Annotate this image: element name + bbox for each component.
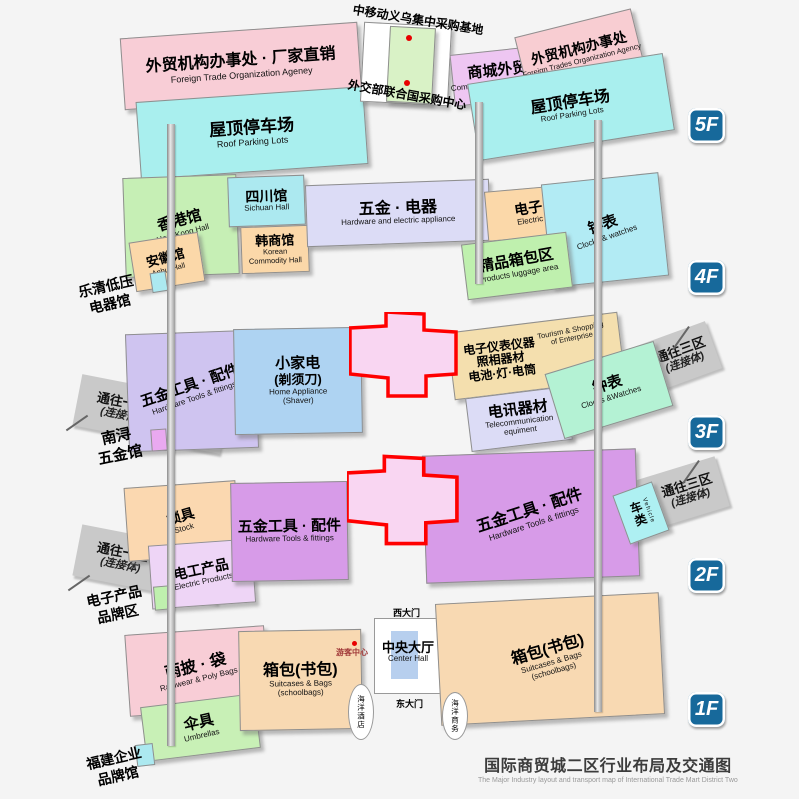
block-label-en: Commodity Hall (249, 256, 302, 266)
support-pillar-center (475, 102, 483, 284)
floor-badge-1f: 1F (688, 692, 725, 727)
connector-cross-3f (349, 312, 459, 398)
annotation-electronics-brand-zone: 电子产品 品牌区 (85, 583, 147, 629)
floor-map-canvas: 外贸机构办事处 · 厂家直销 Foreign Trade Organizatio… (0, 0, 799, 799)
bubble-label: 海洋酒店 (356, 695, 367, 729)
block-label-en: Sichuan Hall (244, 204, 289, 215)
block-label-en: (Shaver) (283, 396, 314, 405)
bubble-label: 海洋商务 (450, 699, 461, 733)
red-dot-marker (404, 80, 410, 86)
annotation-nanxun-hardware-hall: 南浔 五金馆 (93, 424, 145, 470)
small-notch-cyan-4f (150, 271, 169, 293)
block-hardware-tools-mid-2f: 五金工具 · 配件 Hardware Tools & fittings (230, 481, 349, 582)
tourist-center-label: 游客中心 (336, 647, 368, 658)
break-mark (68, 575, 90, 592)
map-title-zh: 国际商贸城二区行业布局及交通图 (478, 752, 738, 776)
center-hall-label: 中央大厅 Center Hall (374, 641, 442, 664)
red-dot-marker (352, 641, 357, 646)
block-label-en: Center Hall (374, 655, 442, 664)
support-pillar-left (167, 124, 175, 746)
map-title-en: The Major Industry layout and transport … (478, 777, 738, 784)
connector-cross-2f (347, 452, 459, 550)
block-label-en: Hardware Tools & fittings (245, 535, 333, 545)
annotation-yueqing-lv-electric-hall: 乐清低压 电器馆 (77, 272, 139, 319)
map-title: 国际商贸城二区行业布局及交通图 The Major Industry layou… (478, 752, 738, 784)
small-notch-purple-3f (150, 428, 167, 451)
block-suitcases-bags-left-1f: 箱包(书包) Suitcases & Bags (schoolbags) (238, 629, 363, 731)
floor-badge-5f: 5F (688, 108, 725, 143)
block-label-en: Hardware and electric appliance (341, 215, 456, 228)
haiyang-business-bubble: 海洋商务 (442, 692, 468, 740)
block-sichuan-hall-4f: 四川馆 Sichuan Hall (227, 175, 306, 228)
floor-badge-4f: 4F (688, 260, 725, 295)
block-label-en: equiment (504, 425, 538, 438)
floor-badge-3f: 3F (688, 415, 725, 450)
east-gate-label: 东大门 (396, 697, 423, 710)
haiyang-hotel-bubble: 海洋酒店 (348, 684, 374, 740)
block-label-en: (schoolbags) (278, 689, 324, 699)
annotation-fujian-brand-hall: 福建企业 品牌馆 (85, 744, 147, 791)
red-dot-marker (406, 35, 412, 41)
block-home-appliance-3f: 小家电 (剃须刀) Home Appliance (Shaver) (233, 327, 363, 435)
block-korean-commodity-hall-4f: 韩商馆 Korean Commodity Hall (240, 225, 310, 274)
block-label-zh: 中央大厅 (374, 641, 442, 655)
west-gate-label: 西大门 (393, 606, 420, 619)
block-suitcases-bags-right-1f: 箱包(书包) Suitcases & Bags (schoolbags) (435, 592, 665, 726)
support-pillar-right (594, 120, 602, 712)
block-label-en: Electric (517, 214, 544, 227)
block-hardware-electric-4f: 五金 · 电器 Hardware and electric appliance (305, 179, 491, 247)
floor-badge-2f: 2F (688, 558, 725, 593)
